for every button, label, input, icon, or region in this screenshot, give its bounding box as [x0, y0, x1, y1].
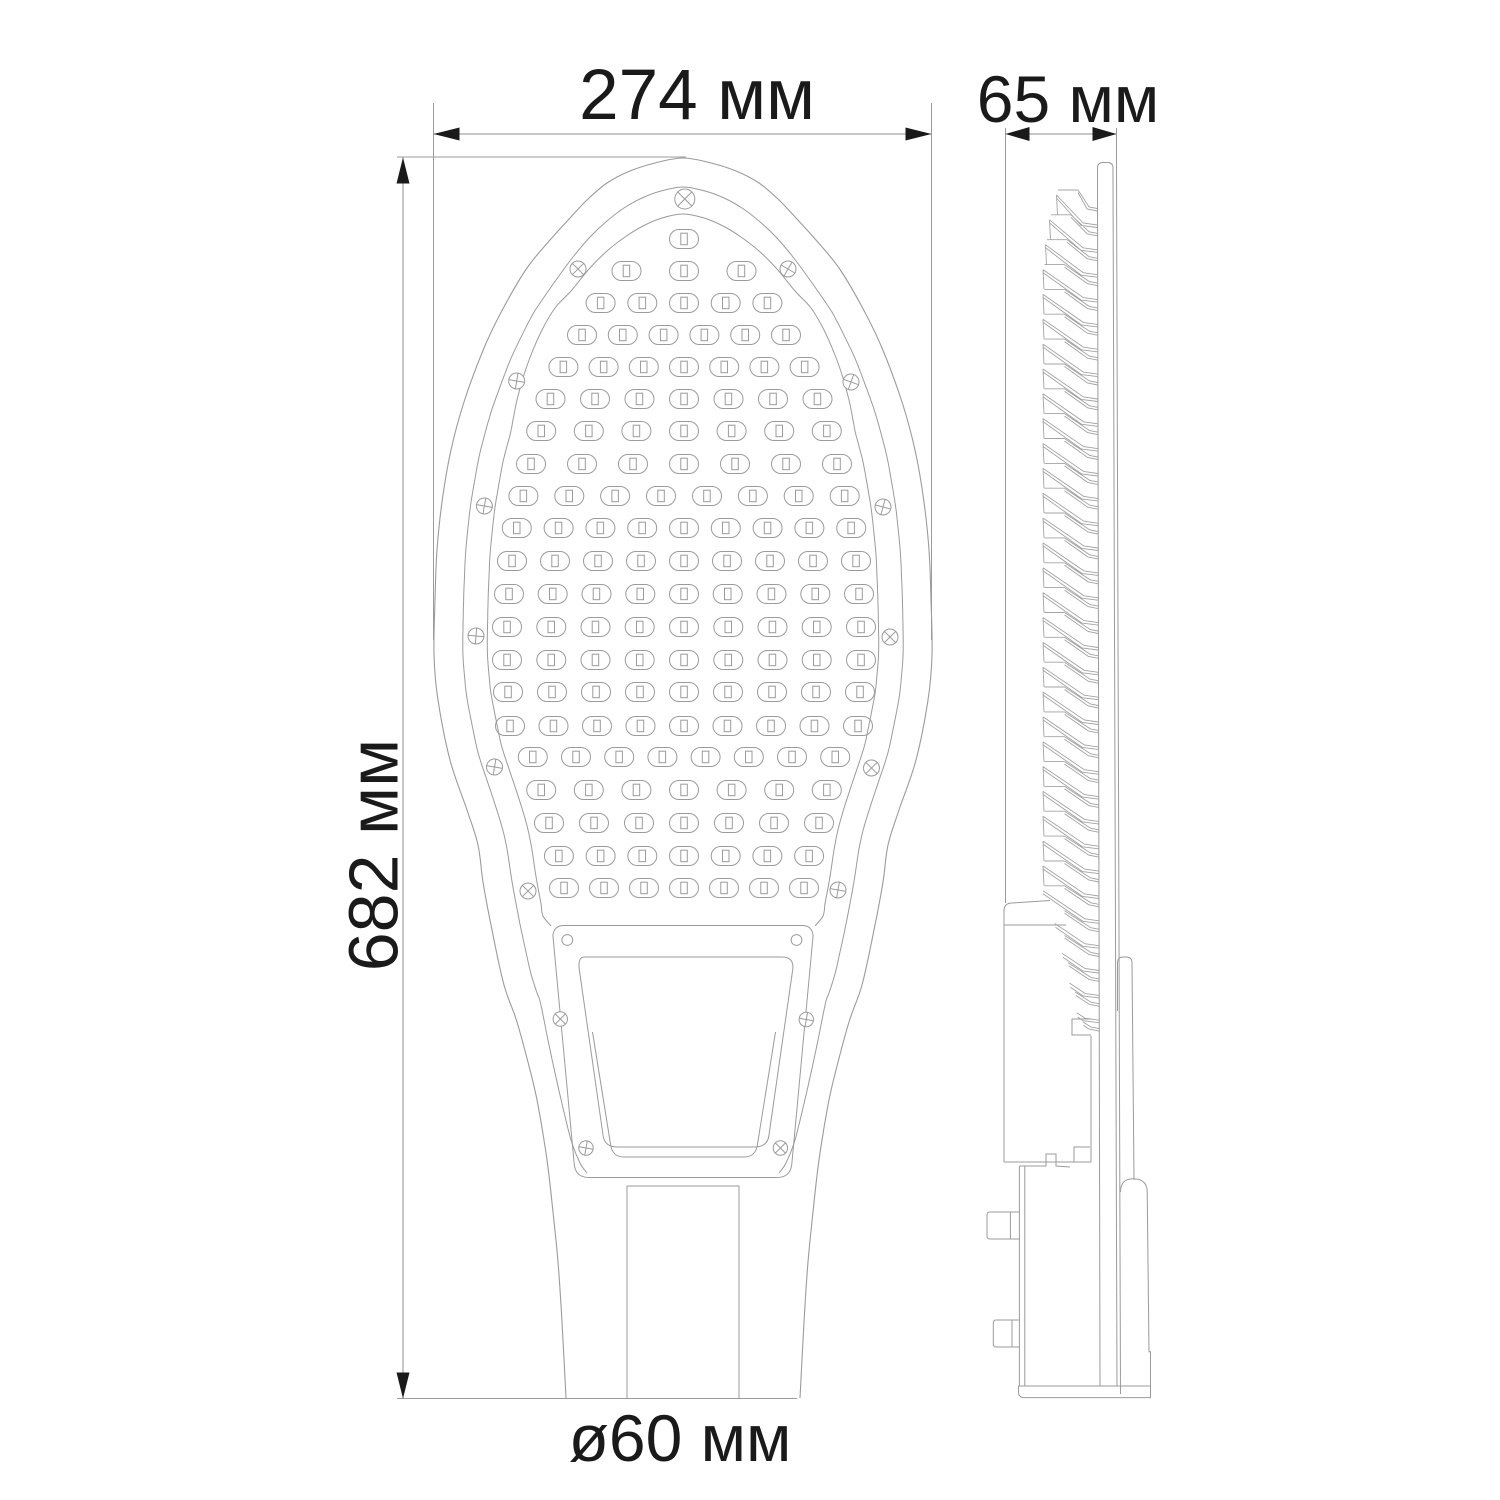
svg-text:65 мм: 65 мм [977, 62, 1160, 136]
svg-text:682 мм: 682 мм [335, 739, 413, 972]
svg-text:274 мм: 274 мм [579, 56, 815, 135]
svg-text:ø60 мм: ø60 мм [569, 1401, 792, 1475]
